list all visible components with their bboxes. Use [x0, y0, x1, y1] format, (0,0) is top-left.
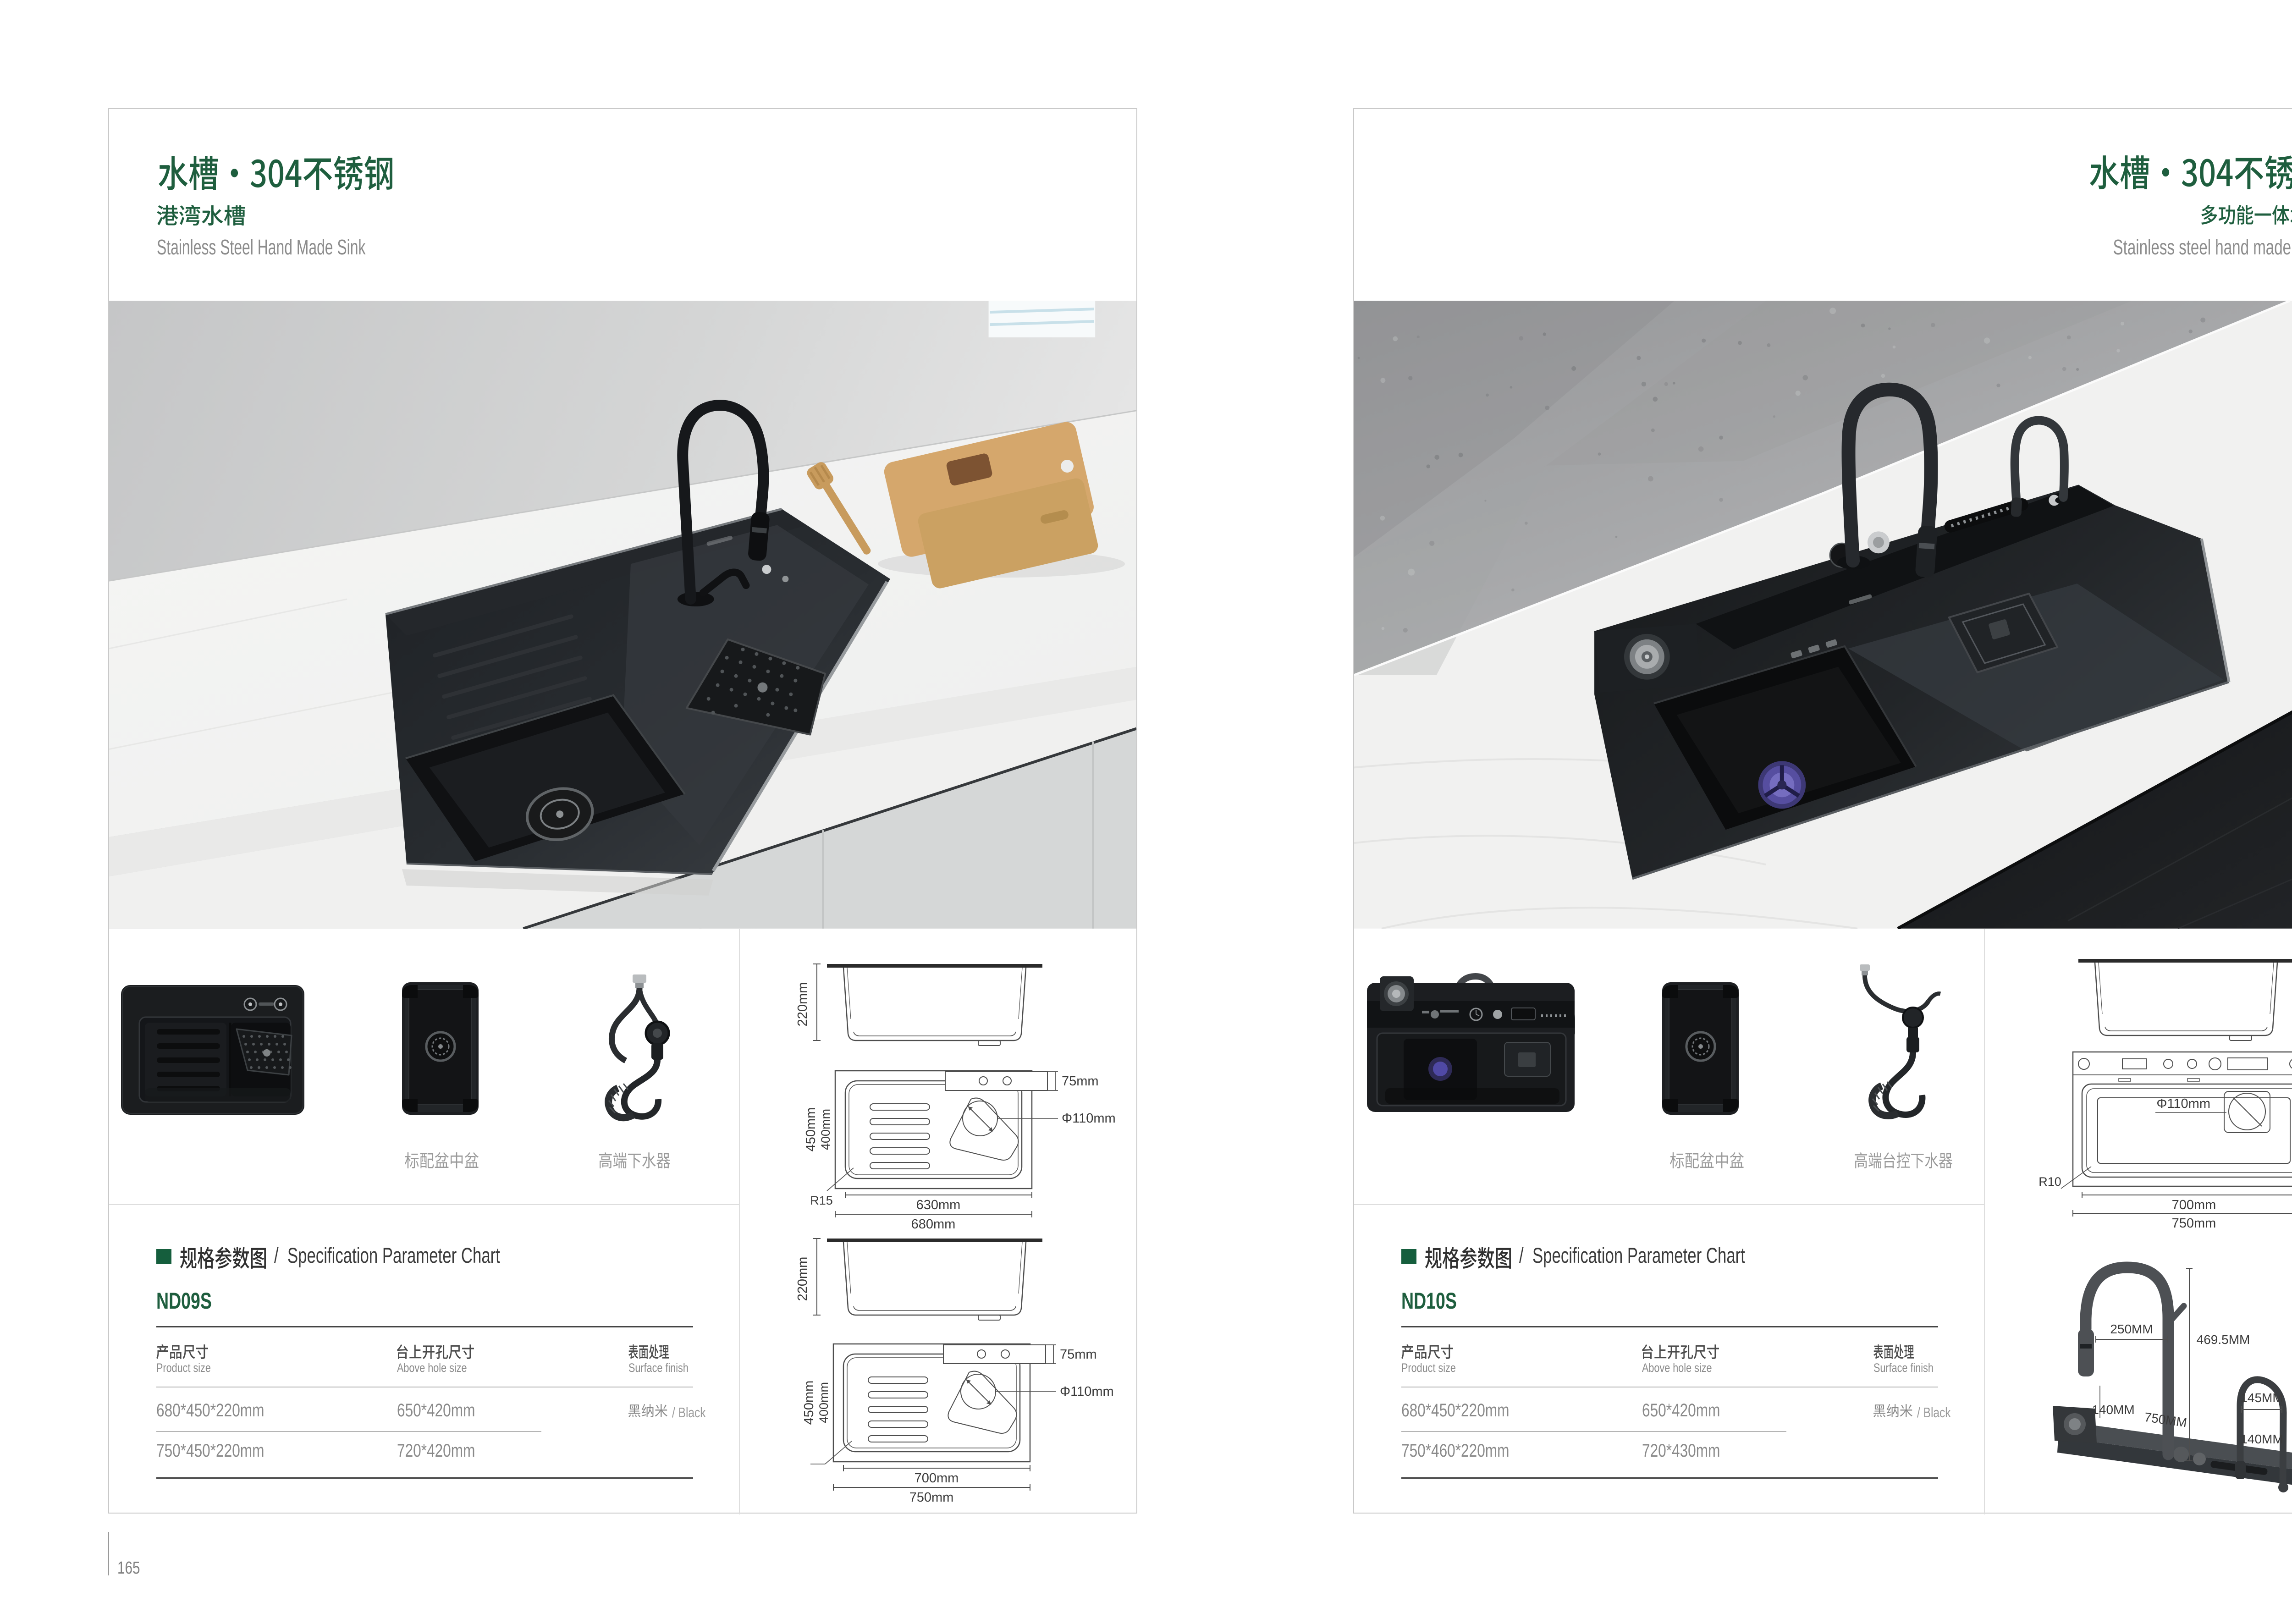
svg-text:700mm: 700mm: [2172, 1198, 2216, 1212]
svg-text:700mm: 700mm: [915, 1471, 959, 1486]
svg-text:140MM: 140MM: [2092, 1403, 2134, 1417]
svg-text:Φ110mm: Φ110mm: [1062, 1111, 1116, 1126]
svg-text:400mm: 400mm: [817, 1382, 831, 1423]
svg-text:75mm: 75mm: [1062, 1074, 1099, 1089]
svg-text:750mm: 750mm: [909, 1490, 954, 1505]
svg-text:450mm: 450mm: [802, 1381, 816, 1425]
svg-text:75mm: 75mm: [1060, 1347, 1097, 1362]
svg-text:450mm: 450mm: [804, 1107, 818, 1152]
svg-text:145MM: 145MM: [2240, 1391, 2283, 1405]
svg-text:750MM: 750MM: [2143, 1410, 2188, 1430]
svg-text:750mm: 750mm: [2172, 1216, 2216, 1231]
svg-text:680mm: 680mm: [911, 1217, 956, 1232]
svg-text:220mm: 220mm: [795, 1257, 810, 1301]
svg-text:Φ110mm: Φ110mm: [2156, 1096, 2210, 1111]
svg-text:220mm: 220mm: [795, 982, 810, 1027]
svg-text:469.5MM: 469.5MM: [2197, 1332, 2250, 1347]
svg-text:R15: R15: [810, 1194, 833, 1207]
svg-text:400mm: 400mm: [819, 1109, 832, 1150]
svg-text:250MM: 250MM: [2110, 1322, 2153, 1336]
svg-text:Φ110mm: Φ110mm: [1060, 1384, 1114, 1399]
svg-text:140MM: 140MM: [2240, 1432, 2283, 1446]
svg-text:630mm: 630mm: [916, 1198, 961, 1212]
svg-text:R10: R10: [2039, 1175, 2061, 1189]
